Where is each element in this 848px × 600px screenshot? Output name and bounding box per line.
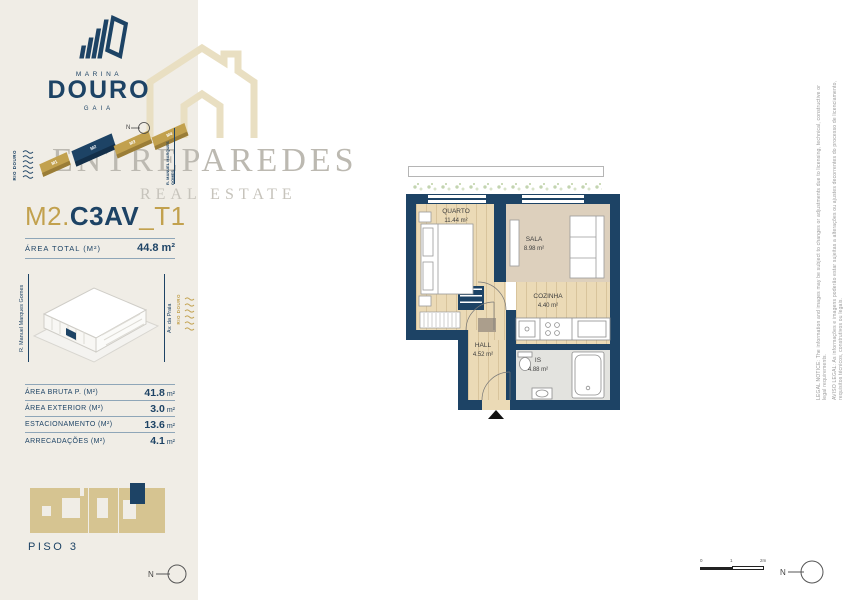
value-number: 3.0 xyxy=(150,403,165,415)
row-label: ÁREA EXTERIOR (M²) xyxy=(25,405,103,412)
value-unit: m² xyxy=(167,439,175,446)
row-label: ÁREA BRUTA P. (M²) xyxy=(25,389,98,396)
river-waves-gold-icon xyxy=(184,294,195,334)
logo-building-icon xyxy=(68,12,130,64)
site-map-block-m2-highlighted: M2 xyxy=(71,133,116,166)
plate-highlighted-unit xyxy=(130,483,145,504)
street-line-right xyxy=(164,274,165,362)
block-m1-label: M1 xyxy=(51,159,58,166)
site-map-street-label: R. MANUEL MARQUES GOMES xyxy=(165,129,175,185)
area-total-row: ÁREA TOTAL (M²) 44.8 m² xyxy=(25,242,175,254)
divider-line xyxy=(25,238,175,239)
plate-core xyxy=(62,498,80,518)
unit-prefix: M2. xyxy=(25,201,70,231)
street-label-right: Av. da Praia xyxy=(167,274,173,362)
building-3d-illustration xyxy=(32,272,160,368)
site-map-compass: N xyxy=(126,120,151,136)
row-value: 13.6m² xyxy=(144,419,175,431)
floor-plate-diagram xyxy=(30,488,165,533)
street-line-left xyxy=(28,274,29,362)
floor-label: PISO 3 xyxy=(28,541,78,553)
logo-gaia-text: GAIA xyxy=(0,106,198,112)
table-row: ESTACIONAMENTO (M²) 13.6m² xyxy=(25,417,175,433)
compass-icon xyxy=(156,562,188,586)
unit-code: C3AV xyxy=(70,201,139,231)
compass-n-label: N xyxy=(148,570,154,579)
brochure-page: ENTREPAREDES REAL ESTATE MARINA DOURO GA… xyxy=(0,0,848,600)
logo-douro-text: DOURO xyxy=(0,78,198,103)
area-total-label: ÁREA TOTAL (M²) xyxy=(25,244,101,253)
plate-notch xyxy=(42,506,51,516)
axon-river-label: RIO DOURO xyxy=(176,294,181,325)
table-row: ÁREA EXTERIOR (M²) 3.0m² xyxy=(25,401,175,417)
row-value: 3.0m² xyxy=(150,403,175,415)
plate-core xyxy=(97,498,108,518)
compass-n-label: N xyxy=(126,125,130,131)
plate-seam xyxy=(88,488,89,533)
street-label-left: R. Manuel Marques Gomes xyxy=(19,274,25,362)
unit-suffix: _T1 xyxy=(139,201,185,231)
row-value: 41.8m² xyxy=(144,387,175,399)
value-unit: m² xyxy=(167,391,175,398)
block-m2-label: M2 xyxy=(90,144,97,151)
plate-seam xyxy=(118,488,119,533)
row-label: ESTACIONAMENTO (M²) xyxy=(25,421,112,428)
plate-notch xyxy=(80,488,84,496)
row-label: ARRECADAÇÕES (M²) xyxy=(25,438,105,445)
river-waves-icon xyxy=(22,148,34,186)
value-number: 13.6 xyxy=(144,419,164,431)
site-map: RIO DOURO M1 M2 M3 M4 N R. MANUEL MA xyxy=(0,118,198,210)
block-m3-label: M3 xyxy=(129,139,136,146)
sidebar-compass: N xyxy=(148,562,188,586)
divider-line xyxy=(25,258,175,259)
row-value: 4.1m² xyxy=(150,435,175,447)
unit-title: M2.C3AV_T1 xyxy=(25,201,186,232)
site-map-block-m1: M1 xyxy=(39,152,70,177)
value-number: 41.8 xyxy=(144,387,164,399)
table-row: ÁREA BRUTA P. (M²) 41.8m² xyxy=(25,385,175,401)
compass-icon xyxy=(131,120,151,136)
areas-table: ÁREA BRUTA P. (M²) 41.8m² ÁREA EXTERIOR … xyxy=(25,384,175,449)
value-number: 4.1 xyxy=(150,435,165,447)
table-row: ARRECADAÇÕES (M²) 4.1m² xyxy=(25,433,175,449)
area-total-value: 44.8 m² xyxy=(137,242,175,254)
building-axonometric: R. Manuel Marques Gomes Av. da Praia RIO… xyxy=(18,268,194,372)
value-unit: m² xyxy=(167,407,175,414)
value-unit: m² xyxy=(167,423,175,430)
site-map-river-label: RIO DOURO xyxy=(12,150,17,181)
marina-douro-logo: MARINA DOURO GAIA xyxy=(0,12,198,112)
